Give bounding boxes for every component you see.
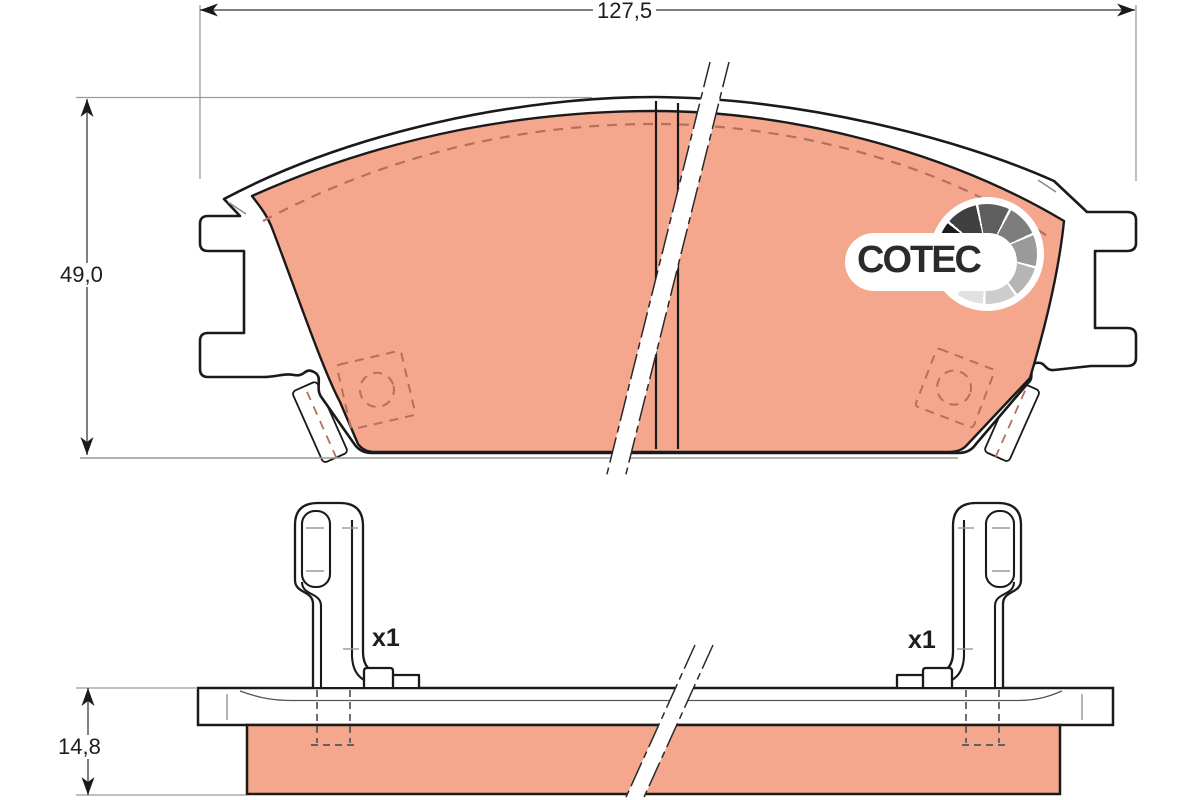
height-dimension-label: 49,0 <box>56 263 107 287</box>
thickness-dimension-label: 14,8 <box>54 735 105 759</box>
cotec-logo: COTEC <box>845 197 1057 303</box>
logo-text: COTEC <box>857 240 980 280</box>
width-dimension-label: 127,5 <box>593 0 656 23</box>
technical-drawing-page: 127,5 49,0 14,8 x1 x1 COTEC <box>0 0 1200 800</box>
quantity-label-right: x1 <box>908 628 936 653</box>
backplate-side <box>198 688 1113 725</box>
quantity-label-left: x1 <box>372 626 400 651</box>
drawing-canvas <box>0 0 1200 800</box>
